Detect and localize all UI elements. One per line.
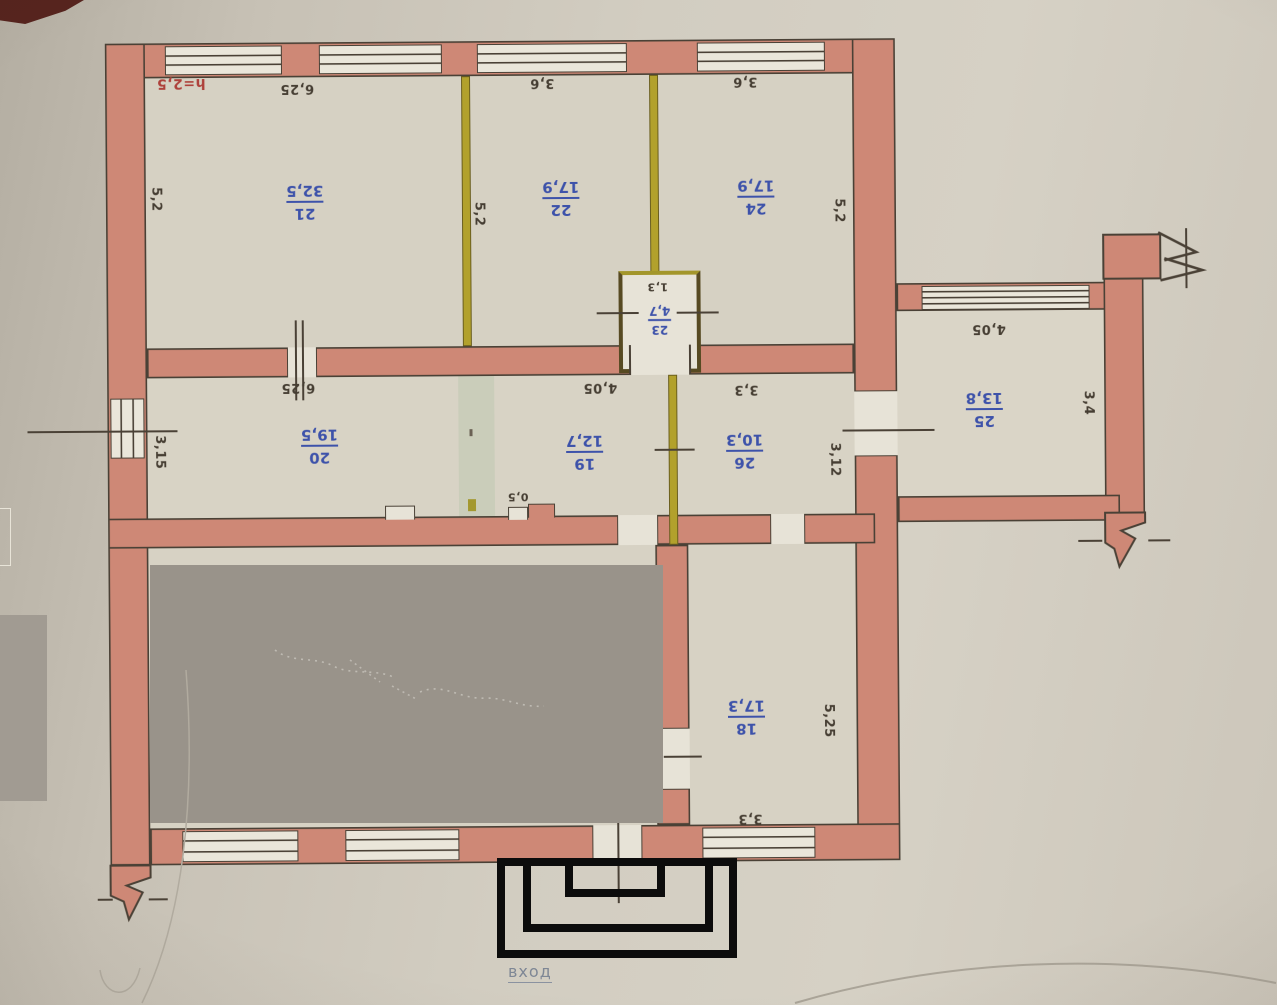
pen-scribbles <box>0 0 1277 1005</box>
floor-plan-photo: 6,25 3,6 3,6 5,2 5,2 5,2 1,3 6,25 4,05 3… <box>0 0 1277 1005</box>
